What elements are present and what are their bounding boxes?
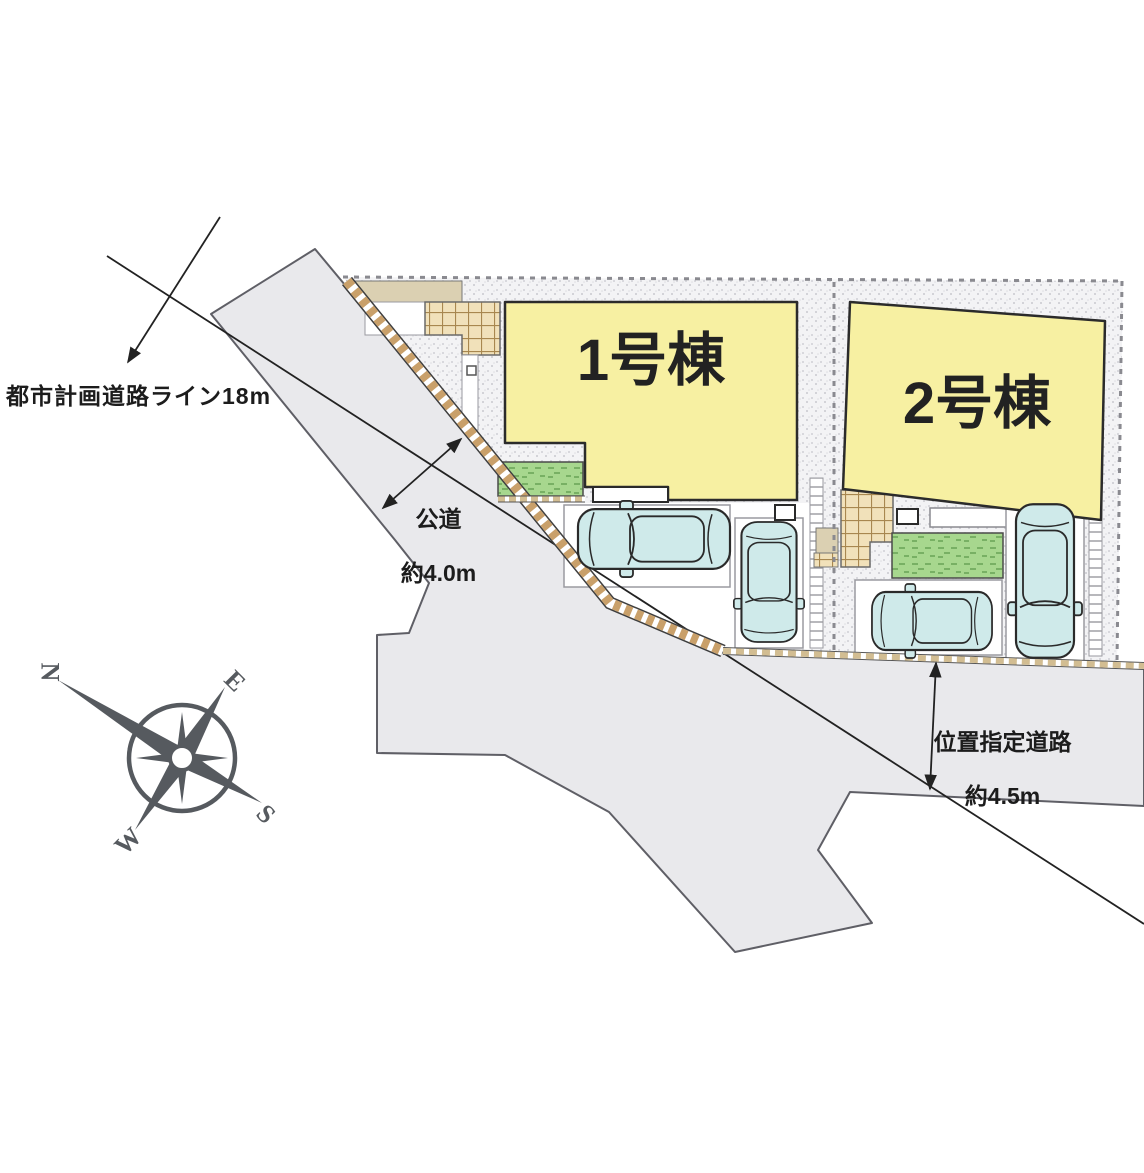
compass-label-s: S <box>251 799 282 830</box>
porch-2 <box>930 508 1008 527</box>
car-lot2-vertical <box>1008 504 1082 658</box>
designated-road-name: 位置指定道路 <box>930 729 1075 756</box>
public-road-width: 約4.0m <box>386 560 491 587</box>
compass-label-e: E <box>219 665 252 698</box>
utility-box-1 <box>775 505 795 520</box>
site-plan: N E S W 都市計画道路ライン18m 公道 約4.0m 位置指定道路 約4.… <box>0 0 1144 1173</box>
compass-rose-icon: N E S W <box>36 663 282 861</box>
building-1-label: 1号棟 <box>531 313 771 397</box>
building-2-label: 2号棟 <box>857 356 1097 440</box>
planning-road-line-label: 都市計画道路ライン18m <box>6 377 271 411</box>
car-lot2-horizontal <box>872 584 992 658</box>
designated-road-width: 約4.5m <box>930 783 1075 810</box>
designated-road-label: 位置指定道路 約4.5m <box>930 702 1075 837</box>
meter-box-1 <box>467 366 476 375</box>
garden-2 <box>892 533 1003 578</box>
compass-label-w: W <box>109 822 148 861</box>
compass-label-n: N <box>36 663 65 682</box>
public-road-name: 公道 <box>386 506 491 533</box>
porch-1 <box>593 487 668 502</box>
planning-line-pointer <box>128 217 220 362</box>
side-wall-strip <box>1089 505 1102 656</box>
site-plan-drawing: N E S W <box>0 0 1144 1173</box>
compass-north-arm <box>58 680 187 766</box>
car-lot1-horizontal <box>578 501 730 577</box>
car-lot1-vertical <box>734 522 804 642</box>
utility-box-2 <box>897 509 918 524</box>
public-road-label: 公道 約4.0m <box>386 479 491 614</box>
